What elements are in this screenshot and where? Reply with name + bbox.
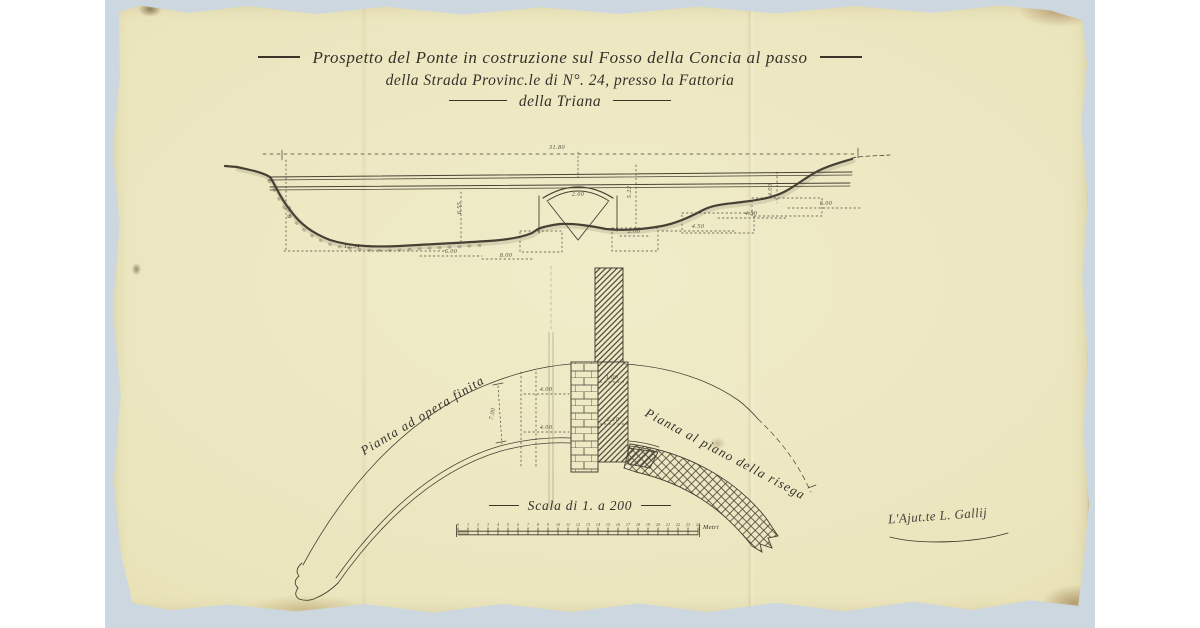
- scale-rule: [641, 505, 671, 506]
- scanned-drawing-page: 31.806.106.5512.346.008.002.005.222.004.…: [0, 0, 1200, 628]
- title-text-2: della Strada Provinc.le di N°. 24, press…: [386, 72, 735, 89]
- title-text-3: della Triana: [519, 93, 601, 110]
- title-rule: [449, 100, 507, 101]
- title-text-1: Prospetto del Ponte in costruzione sul F…: [312, 48, 807, 67]
- title-line-1: Prospetto del Ponte in costruzione sul F…: [190, 48, 930, 68]
- title-rule: [820, 56, 862, 57]
- title-rule: [613, 100, 671, 101]
- scale-rule: [489, 505, 519, 506]
- title-block: Prospetto del Ponte in costruzione sul F…: [190, 48, 930, 111]
- title-line-3: della Triana: [190, 93, 930, 111]
- scale-unit-label: Metri: [703, 524, 719, 531]
- title-line-2: della Strada Provinc.le di N°. 24, press…: [190, 72, 930, 90]
- title-rule: [258, 56, 300, 57]
- scale-caption: Scala di 1. a 200: [455, 498, 705, 514]
- scale-text: Scala di 1. a 200: [528, 498, 633, 513]
